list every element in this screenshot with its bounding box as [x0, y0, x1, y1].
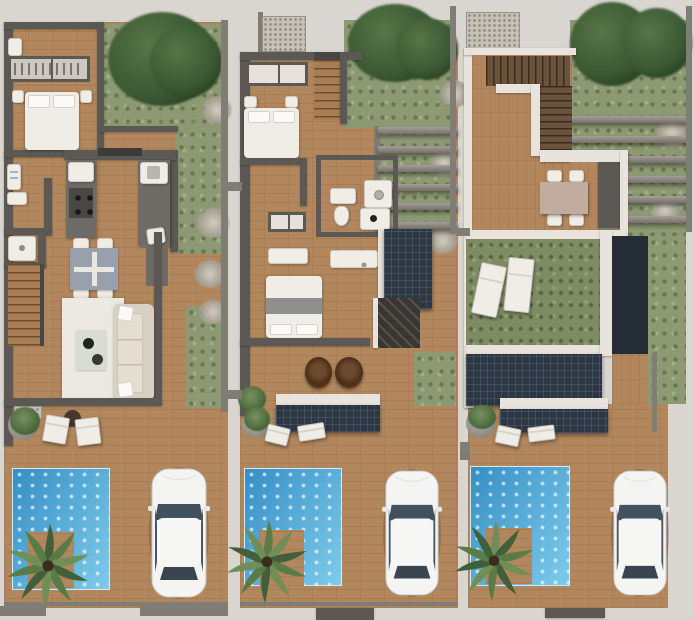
- pergola-slat: [622, 156, 688, 163]
- parapet-mid: [540, 150, 628, 162]
- boundary-wall: [652, 352, 657, 432]
- dining-chair: [569, 170, 584, 182]
- palm-tree: [450, 512, 538, 606]
- dining-chair: [547, 170, 562, 182]
- potted-plant: [468, 405, 496, 429]
- bedroom-wall: [300, 158, 307, 206]
- pillow: [28, 95, 50, 108]
- pergola-slat: [622, 196, 688, 203]
- terrace-chair: [42, 414, 70, 445]
- wardrobe-divider: [51, 59, 53, 79]
- table-bowl: [92, 354, 103, 365]
- nightstand: [285, 96, 298, 108]
- wardrobe-hangers: [8, 56, 90, 82]
- shelf-wardrobe: [246, 62, 308, 86]
- stair-flight-lower: [540, 86, 572, 152]
- garden-wall: [97, 22, 104, 152]
- shower-drain: [374, 190, 384, 200]
- pergola-slat: [378, 127, 458, 134]
- parked-car: [382, 466, 442, 600]
- curb-pad: [545, 608, 605, 618]
- parapet-band: [466, 345, 612, 354]
- wardrobe-divider: [288, 215, 290, 229]
- double-vanity: [330, 250, 378, 268]
- nightstand: [80, 90, 92, 103]
- gravel-pad: [466, 12, 520, 50]
- coffee-table: [76, 330, 106, 370]
- toilet: [334, 206, 349, 226]
- pergola-slat: [622, 216, 688, 223]
- gap-wall-stub: [226, 390, 242, 399]
- kitchen-fridge-top: [68, 162, 94, 182]
- potted-plant: [244, 407, 270, 431]
- shelf-wardrobe: [268, 212, 306, 232]
- floor-plan-render: [0, 0, 694, 620]
- parked-car: [610, 466, 670, 600]
- stair-flight-upper: [486, 56, 570, 86]
- stair-landing: [314, 52, 340, 60]
- double-bed: [25, 92, 79, 150]
- sofa: [114, 304, 154, 400]
- bathroom-basin: [7, 192, 27, 205]
- stair-bulkhead: [378, 298, 420, 348]
- outdoor-dining-table: [540, 182, 588, 214]
- party-wall: [221, 20, 228, 412]
- pillow: [270, 324, 292, 335]
- gate: [460, 442, 470, 460]
- party-wall: [450, 6, 456, 234]
- palm-tree: [222, 514, 312, 606]
- side-grass: [414, 352, 456, 406]
- nightstand: [244, 96, 257, 108]
- stair-rail: [531, 84, 540, 156]
- curb-pad: [140, 606, 228, 616]
- blanket: [266, 298, 322, 314]
- sofa-pillow: [117, 305, 134, 322]
- entry-mat: [8, 38, 22, 56]
- pergola-slat: [378, 146, 458, 153]
- exterior-wall-top: [4, 22, 104, 29]
- shower-drain: [19, 245, 25, 251]
- balcony-wall: [240, 338, 370, 346]
- garden-tree: [622, 8, 692, 78]
- range-hood: [98, 148, 142, 156]
- garden-tree: [150, 26, 222, 98]
- bed-two: [266, 276, 322, 338]
- staircase: [8, 264, 44, 346]
- parapet-right: [620, 150, 628, 236]
- wardrobe-divider: [278, 65, 280, 83]
- gap-wall-stub: [226, 182, 242, 191]
- dresser: [268, 248, 308, 264]
- bathroom-basin: [330, 188, 356, 204]
- staircase: [314, 60, 340, 120]
- hall-wall: [100, 126, 178, 132]
- pergola-slat: [568, 136, 688, 143]
- table-inlay: [92, 252, 97, 286]
- parked-car: [148, 466, 210, 600]
- canopy-ledge: [276, 394, 380, 405]
- roof-wall: [598, 162, 622, 228]
- dining-chair: [547, 214, 562, 226]
- bathroom-wall: [44, 178, 52, 235]
- dining-chair: [569, 214, 584, 226]
- palm-tree: [2, 518, 94, 610]
- garden-tree: [396, 18, 458, 80]
- pillow: [296, 324, 318, 335]
- nightstand: [12, 90, 24, 103]
- washing-machine: [7, 164, 21, 190]
- cooktop: [69, 188, 93, 218]
- stair-wall: [340, 52, 347, 124]
- hanger-rail: [14, 63, 84, 75]
- louvered-canopy: [276, 405, 380, 432]
- terrace-wall: [4, 398, 162, 406]
- hanging-chair: [305, 357, 332, 388]
- parapet-top: [464, 48, 576, 55]
- hanging-chair: [335, 357, 363, 388]
- curb-pad: [316, 608, 374, 620]
- pillow: [248, 111, 270, 123]
- terrace-chair: [74, 417, 101, 447]
- party-wall: [686, 6, 692, 232]
- pillow: [53, 95, 75, 108]
- canopy-ledge: [500, 398, 608, 409]
- stair-bulkhead: [612, 236, 650, 354]
- roof-strip: [612, 354, 648, 404]
- bed-one: [244, 108, 299, 158]
- kitchen-wall: [170, 150, 178, 252]
- solar-panel: [384, 229, 432, 309]
- tub-drain: [370, 215, 377, 222]
- sofa-pillow: [117, 381, 134, 398]
- pergola-slat: [568, 116, 688, 123]
- sink-bowl: [147, 166, 160, 179]
- pergola-slat: [622, 176, 688, 183]
- living-wall: [154, 232, 162, 404]
- dining-table: [70, 248, 118, 290]
- bedroom-wall: [240, 158, 306, 165]
- gravel-pad: [262, 16, 306, 52]
- potted-plant: [10, 407, 40, 435]
- bulkhead-edge: [600, 230, 612, 356]
- gap-wall-stub: [456, 228, 470, 236]
- pillow: [273, 111, 295, 123]
- table-bowl: [83, 338, 94, 349]
